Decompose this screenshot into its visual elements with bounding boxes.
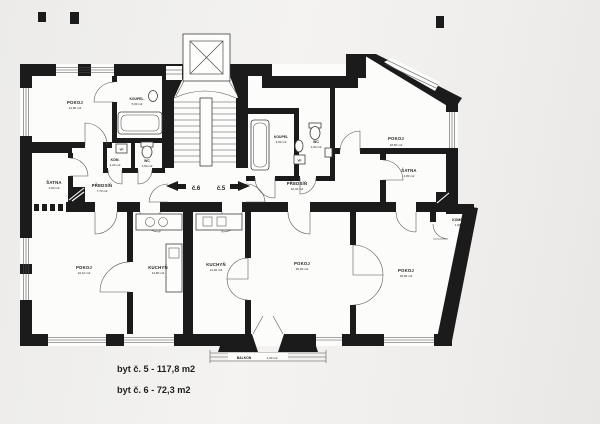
room-area: 1,50 m2 (142, 164, 153, 168)
room-label: KUCHYŇ (206, 262, 226, 267)
room-area: 10,40 m2 (291, 187, 304, 191)
room-label: WC (144, 159, 150, 163)
room-label: PŘEDSÍŇ (92, 183, 113, 188)
room-area: 2,90 m2 (49, 186, 60, 190)
floorplan-svg: č.6 č.5 POKOJ 14,80 m2 KOUPEL. 5,00 m2 K… (0, 0, 600, 424)
room-label: ŠATNA (401, 168, 416, 173)
room-area: 3,60 m2 (276, 140, 287, 144)
sink-icon (295, 140, 303, 152)
room-label: POKOJ (67, 100, 83, 105)
utility-label-vr: VR (298, 159, 302, 163)
scan-marks (38, 12, 444, 28)
entrance-label-6: č.6 (192, 186, 201, 192)
room-area: 5,00 m2 (132, 102, 143, 106)
room-label: WC (313, 140, 319, 144)
room-label: KOUPEL (274, 135, 288, 139)
room-label: POKOJ (76, 265, 92, 270)
footer: byt č. 5 - 117,8 m2 byt č. 6 - 72,3 m2 (117, 364, 195, 395)
room-label: KOUPEL. (129, 97, 144, 101)
room-label: POKOJ (398, 268, 414, 273)
room-area: 1,90 m2 (455, 223, 466, 227)
room-label: BALKON (237, 356, 252, 360)
floorplan-page: č.6 č.5 POKOJ 14,80 m2 KOUPEL. 5,00 m2 K… (0, 0, 600, 424)
room-area: 2,30 m2 (267, 356, 278, 360)
room-area: 26,00 m2 (296, 267, 309, 271)
room-label: KUCHYŇ (148, 265, 168, 270)
room-area: 22,10 m2 (78, 271, 91, 275)
room-area: 14,80 m2 (152, 271, 165, 275)
room-area: 1,60 m2 (311, 145, 322, 149)
room-label: PŘEDSÍŇ (287, 181, 308, 186)
room-area: 7,70 m2 (97, 189, 108, 193)
room-label: KOM. (111, 158, 120, 162)
room-label: POKOJ (294, 261, 310, 266)
room-label: POKOJ (388, 136, 404, 141)
room-area: 4,80 m2 (404, 174, 415, 178)
room-area: 14,80 m2 (69, 106, 82, 110)
entrance-label-5: č.5 (217, 186, 226, 192)
utility-label-vr: VR (120, 148, 124, 152)
kitchen-counter (136, 214, 182, 230)
sink-icon (149, 91, 158, 102)
room-label: KOMORA (452, 218, 468, 222)
room-area: 26,80 m2 (400, 274, 413, 278)
apartment-5-summary: byt č. 5 - 117,8 m2 (117, 364, 195, 374)
kitchen-counter (166, 244, 182, 292)
room-area: 1,20 m2 (110, 163, 121, 167)
apartment-6-summary: byt č. 6 - 72,3 m2 (117, 385, 191, 395)
room-label: ŠATNA (46, 180, 61, 185)
room-area: 14,00 m2 (210, 268, 223, 272)
room-area: 18,80 m2 (390, 143, 403, 147)
